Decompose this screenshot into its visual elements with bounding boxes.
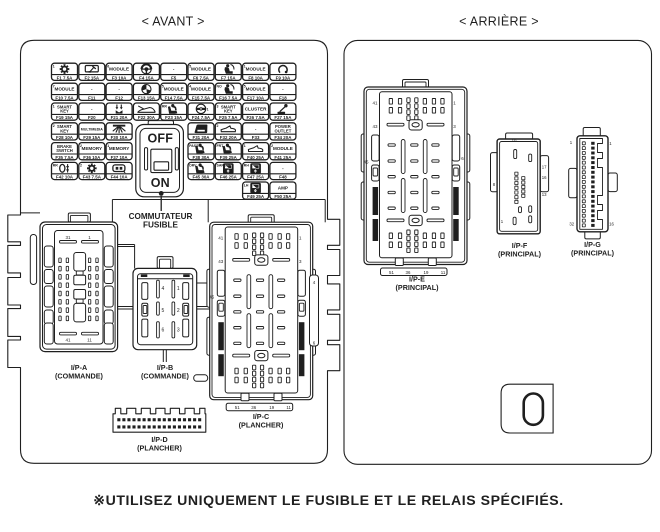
svg-text:AMP: AMP — [278, 186, 288, 191]
svg-text:F11: F11 — [88, 95, 96, 100]
svg-text:(PRINCIPAL): (PRINCIPAL) — [396, 283, 440, 292]
svg-text:41: 41 — [218, 236, 224, 241]
svg-text:F1 7.5A: F1 7.5A — [57, 75, 74, 80]
svg-text:F19 15A: F19 15A — [56, 115, 74, 120]
svg-text:2: 2 — [177, 308, 180, 314]
svg-text:MODULE: MODULE — [55, 87, 75, 92]
svg-text:(COMMANDE): (COMMANDE) — [141, 372, 190, 381]
svg-text:F39 25A: F39 25A — [220, 155, 238, 160]
svg-text:7: 7 — [53, 85, 55, 89]
svg-text:16: 16 — [542, 175, 547, 180]
svg-text:MODULE: MODULE — [191, 67, 211, 72]
svg-text:F38 30A: F38 30A — [192, 155, 210, 160]
svg-text:MODULE: MODULE — [164, 87, 184, 92]
svg-text:2: 2 — [271, 144, 273, 148]
svg-text:6: 6 — [162, 328, 165, 334]
svg-text:13: 13 — [542, 192, 547, 197]
svg-text:(PRINCIPAL): (PRINCIPAL) — [498, 250, 542, 259]
svg-text:F5: F5 — [171, 75, 177, 80]
svg-text:F33: F33 — [252, 135, 260, 140]
svg-text:17: 17 — [542, 165, 547, 170]
svg-text:F10 7.5A: F10 7.5A — [55, 95, 74, 100]
svg-text:F48: F48 — [279, 175, 287, 180]
svg-text:MODULE: MODULE — [273, 146, 293, 151]
svg-text:1: 1 — [107, 144, 109, 148]
svg-text:41: 41 — [372, 101, 378, 106]
svg-text:F23 15A: F23 15A — [165, 115, 183, 120]
svg-text:MODULE: MODULE — [109, 67, 129, 72]
svg-text:1: 1 — [207, 107, 209, 111]
svg-text:6: 6 — [107, 65, 109, 69]
svg-text:2: 2 — [80, 164, 82, 168]
svg-text:(PRINCIPAL): (PRINCIPAL) — [571, 249, 615, 258]
svg-text:43: 43 — [218, 259, 224, 264]
svg-text:(PLANCHER): (PLANCHER) — [239, 421, 284, 430]
svg-text:31: 31 — [65, 235, 71, 240]
svg-text:MODULE: MODULE — [246, 67, 266, 72]
svg-text:F16 7.5A: F16 7.5A — [219, 95, 238, 100]
svg-text:F26 7.5A: F26 7.5A — [246, 115, 265, 120]
svg-text:F22 30A: F22 30A — [138, 115, 156, 120]
svg-text:PASS: PASS — [189, 144, 199, 148]
svg-text:11: 11 — [441, 270, 446, 275]
svg-text:F2 15A: F2 15A — [85, 75, 100, 80]
svg-text:F28 10A: F28 10A — [56, 135, 74, 140]
svg-text:5: 5 — [162, 85, 164, 89]
svg-text:F34 20A: F34 20A — [274, 135, 292, 140]
svg-text:2: 2 — [217, 124, 219, 128]
svg-text:※UTILISEZ UNIQUEMENT LE FUSIBL: ※UTILISEZ UNIQUEMENT LE FUSIBLE ET LE RE… — [93, 492, 563, 508]
svg-text:F43 7.5A: F43 7.5A — [83, 175, 102, 180]
svg-text:F44 10A: F44 10A — [111, 175, 129, 180]
svg-text:51: 51 — [389, 270, 394, 275]
svg-text:(COMMANDE): (COMMANDE) — [55, 372, 104, 381]
svg-text:16: 16 — [609, 222, 614, 227]
svg-text:F25 7.5A: F25 7.5A — [219, 115, 238, 120]
svg-text:45: 45 — [363, 160, 369, 165]
svg-text:MEMORY: MEMORY — [82, 146, 103, 151]
svg-text:F49 25A: F49 25A — [247, 194, 265, 199]
svg-text:45: 45 — [209, 295, 215, 300]
svg-text:RR: RR — [162, 104, 168, 108]
svg-text:F8 10A: F8 10A — [248, 75, 263, 80]
svg-text:F47 25A: F47 25A — [247, 175, 265, 180]
svg-text:11: 11 — [286, 405, 291, 410]
svg-text:41: 41 — [65, 338, 71, 343]
svg-text:32: 32 — [569, 222, 574, 227]
svg-text:(PLANCHER): (PLANCHER) — [137, 444, 182, 453]
svg-text:MULTIMEDIA: MULTIMEDIA — [81, 127, 103, 131]
svg-text:4: 4 — [162, 286, 165, 292]
svg-text:OFF: OFF — [147, 132, 173, 146]
svg-text:F29 15A: F29 15A — [83, 135, 101, 140]
svg-text:RH: RH — [244, 164, 250, 168]
svg-text:5: 5 — [244, 85, 246, 89]
svg-text:F14 7.5A: F14 7.5A — [165, 95, 184, 100]
svg-text:F31 20A: F31 20A — [192, 135, 210, 140]
svg-text:F30 10A: F30 10A — [111, 135, 129, 140]
svg-text:F24 7.5A: F24 7.5A — [192, 115, 211, 120]
svg-text:RR: RR — [53, 164, 59, 168]
svg-text:51: 51 — [235, 405, 240, 410]
svg-text:2: 2 — [80, 144, 82, 148]
svg-text:KEY: KEY — [60, 128, 69, 133]
svg-text:5: 5 — [189, 65, 191, 69]
svg-text:1: 1 — [244, 144, 246, 148]
svg-text:F20: F20 — [88, 115, 96, 120]
svg-text:DRV: DRV — [189, 164, 197, 168]
svg-text:F46 25A: F46 25A — [220, 175, 238, 180]
svg-text:F27 15A: F27 15A — [274, 115, 292, 120]
svg-text:3: 3 — [177, 328, 180, 334]
svg-text:F4 15A: F4 15A — [139, 75, 154, 80]
svg-text:F18: F18 — [279, 95, 287, 100]
svg-text:F45 30A: F45 30A — [192, 175, 210, 180]
svg-text:SWITCH: SWITCH — [56, 148, 73, 153]
svg-text:3: 3 — [217, 104, 219, 108]
svg-text:MODULE: MODULE — [246, 87, 266, 92]
svg-text:1: 1 — [177, 286, 180, 292]
svg-text:F17 10A: F17 10A — [247, 95, 265, 100]
svg-text:F21 20A: F21 20A — [111, 115, 129, 120]
svg-text:F6 7.5A: F6 7.5A — [193, 75, 210, 80]
svg-text:KEY: KEY — [224, 109, 233, 114]
svg-text:< ARRIÈRE >: < ARRIÈRE > — [459, 13, 539, 28]
svg-text:CLUSTER: CLUSTER — [245, 107, 267, 112]
svg-text:F12: F12 — [115, 95, 123, 100]
svg-text:F32 20A: F32 20A — [220, 135, 238, 140]
svg-text:LH: LH — [244, 183, 249, 187]
svg-text:F35 7.5A: F35 7.5A — [55, 155, 74, 160]
svg-text:4: 4 — [189, 85, 191, 89]
svg-text:< AVANT >: < AVANT > — [142, 14, 205, 28]
svg-text:F3 10A: F3 10A — [112, 75, 127, 80]
svg-text:SAFETY: SAFETY — [217, 164, 231, 168]
svg-text:1: 1 — [53, 65, 55, 69]
svg-text:1: 1 — [53, 104, 55, 108]
svg-text:F40 25A: F40 25A — [247, 155, 265, 160]
svg-text:10: 10 — [512, 138, 517, 143]
svg-text:F37 10A: F37 10A — [111, 155, 129, 160]
svg-text:MEMORY: MEMORY — [109, 146, 130, 151]
svg-text:1: 1 — [244, 65, 246, 69]
svg-text:F13 15A: F13 15A — [138, 95, 156, 100]
svg-text:F7 15A: F7 15A — [221, 75, 236, 80]
svg-text:F41 25A: F41 25A — [274, 155, 292, 160]
svg-text:2: 2 — [53, 124, 55, 128]
svg-text:KEY: KEY — [60, 109, 69, 114]
svg-text:11: 11 — [87, 338, 92, 343]
svg-text:FRT: FRT — [217, 144, 225, 148]
svg-text:ON: ON — [151, 176, 170, 190]
svg-text:5: 5 — [162, 308, 165, 314]
svg-text:F42 10A: F42 10A — [56, 175, 74, 180]
svg-text:F9 10A: F9 10A — [276, 75, 291, 80]
svg-text:NO: NO — [217, 85, 223, 89]
svg-text:MODULE: MODULE — [191, 87, 211, 92]
svg-text:19: 19 — [269, 405, 274, 410]
svg-text:F15 7.5A: F15 7.5A — [192, 95, 211, 100]
svg-text:36: 36 — [251, 405, 256, 410]
svg-text:OUTLET: OUTLET — [275, 128, 292, 133]
svg-text:43: 43 — [372, 124, 378, 129]
svg-text:F50 25A: F50 25A — [274, 194, 292, 199]
svg-text:FUSIBLE: FUSIBLE — [143, 220, 179, 229]
svg-text:F36 10A: F36 10A — [83, 155, 101, 160]
